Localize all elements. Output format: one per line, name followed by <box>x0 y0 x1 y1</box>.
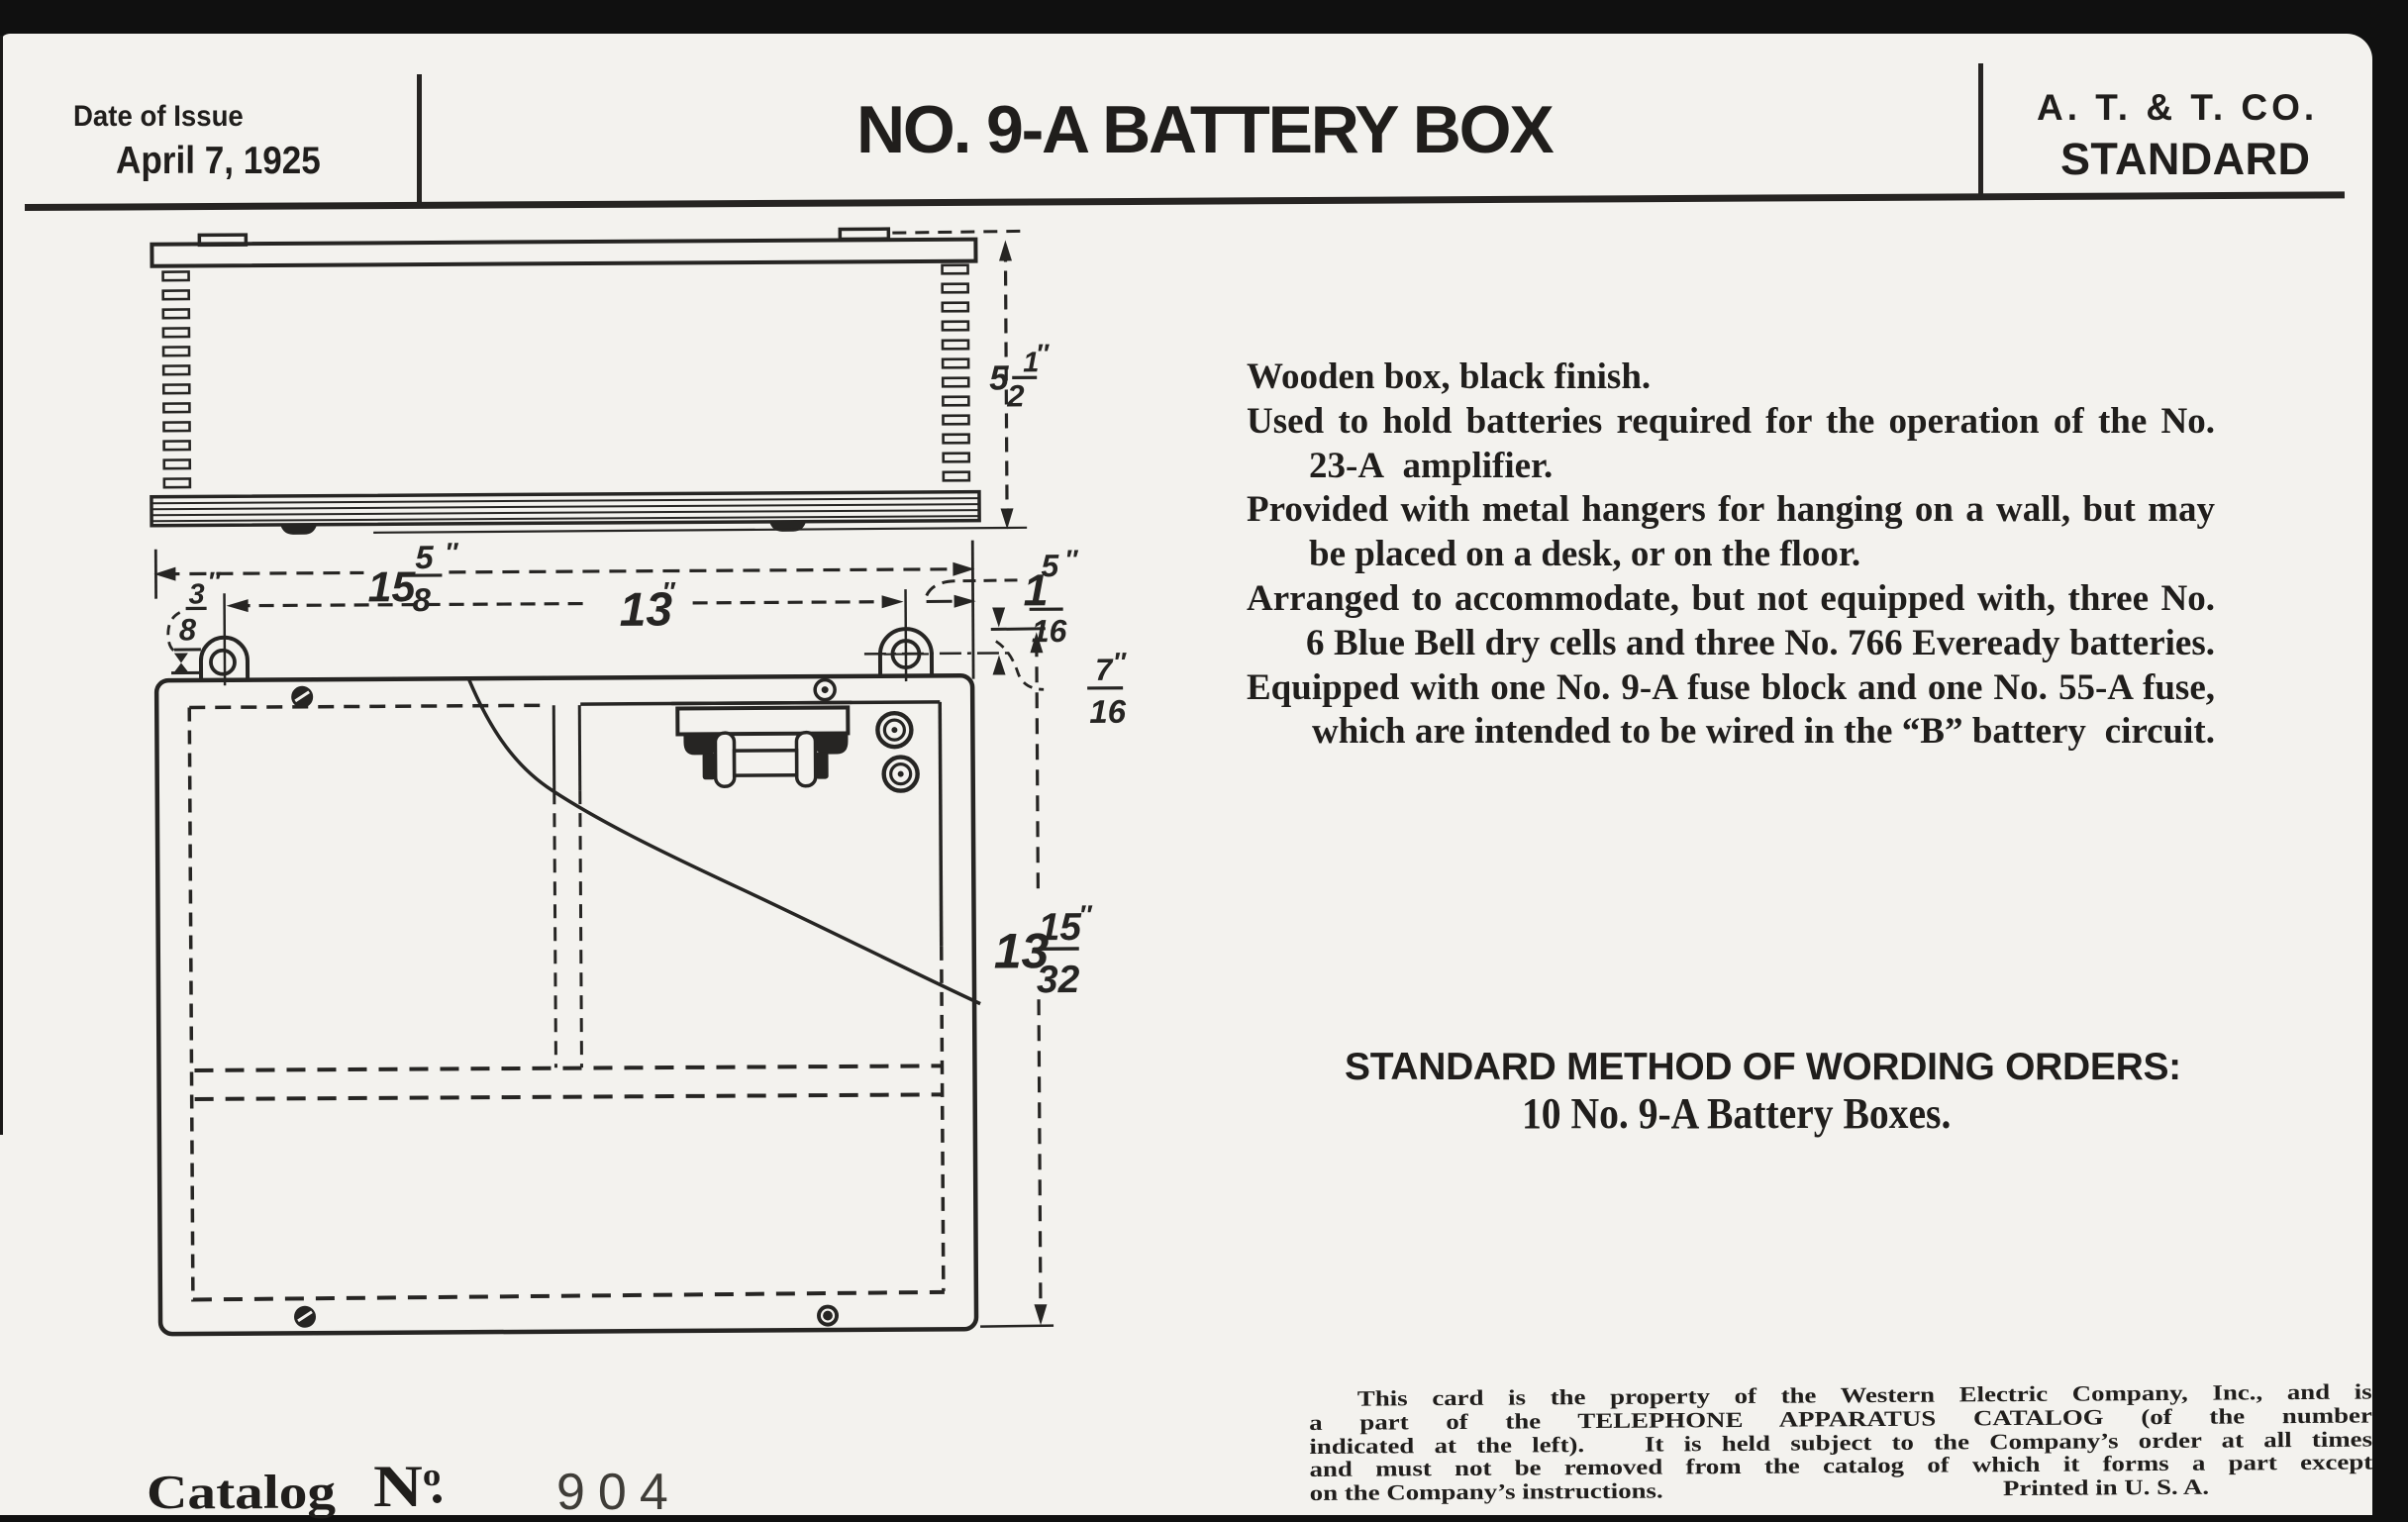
svg-text:″: ″ <box>1113 648 1127 677</box>
svg-text:8: 8 <box>179 612 197 647</box>
svg-text:32: 32 <box>1037 959 1080 1001</box>
svg-text:″: ″ <box>445 538 458 567</box>
svg-text:16: 16 <box>1089 693 1127 730</box>
svg-text:″: ″ <box>1064 545 1078 574</box>
svg-text:5: 5 <box>415 539 434 575</box>
svg-text:7: 7 <box>1095 653 1114 687</box>
svg-text:8: 8 <box>412 581 431 618</box>
svg-text:″: ″ <box>1078 900 1092 930</box>
svg-text:5: 5 <box>1041 548 1059 583</box>
svg-text:″: ″ <box>661 576 675 606</box>
svg-text:2: 2 <box>1006 378 1024 413</box>
svg-text:15: 15 <box>1038 906 1082 949</box>
svg-text:″: ″ <box>207 566 221 596</box>
svg-text:″: ″ <box>1036 339 1050 368</box>
svg-text:3: 3 <box>188 578 204 610</box>
